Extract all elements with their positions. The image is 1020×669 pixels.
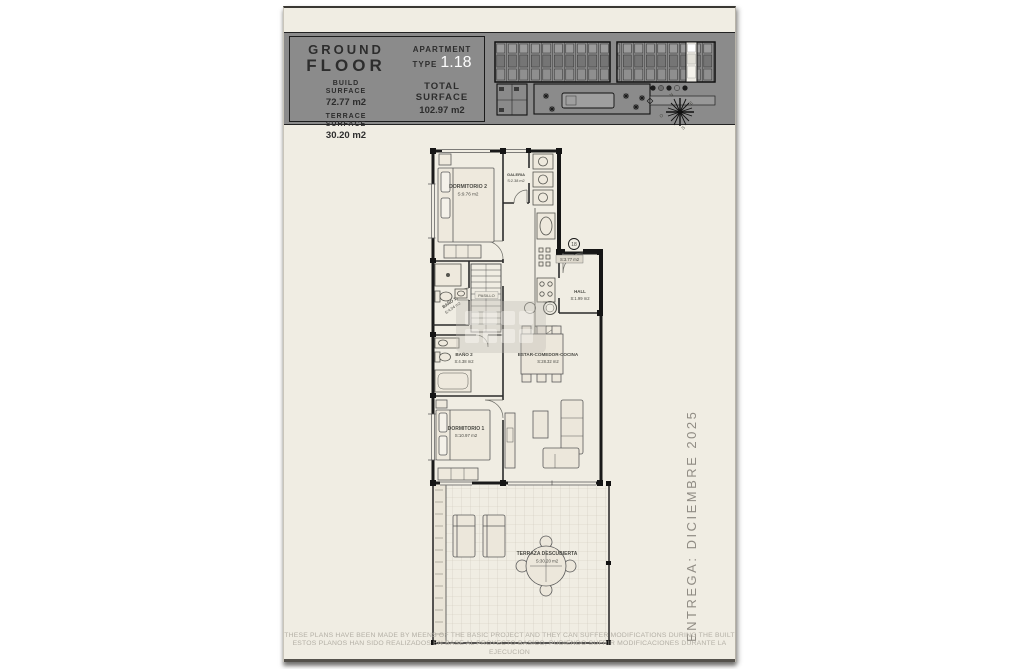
title-left-column: GROUND FLOOR BUILD SURFACE 72.77 m2 TERR… (290, 37, 402, 141)
galeria-area: S:2.38 m2 (507, 179, 524, 183)
hall-name: HALL (574, 289, 586, 294)
dormitorio1-name: DORMITORIO 1 (448, 426, 485, 432)
compass-o: O (658, 112, 664, 118)
amenity-area (497, 84, 715, 115)
bedroom2-furniture (438, 154, 494, 258)
hall-area: S:1.99 m2 (570, 296, 590, 301)
unit-number: 18 (571, 242, 577, 248)
terrace-planter (433, 483, 446, 643)
disclaimer: THESE PLANS HAVE BEEN MADE BY MEENS OF T… (284, 632, 735, 658)
build-surface-value: 72.77 m2 (290, 97, 402, 108)
apartment-type-value: 1.18 (440, 54, 471, 72)
pasillo-name: PASILLO (478, 293, 494, 298)
floor-title-line2: FLOOR (290, 57, 402, 75)
delivery-note: ENTREGA: DICIEMBRE 2025 (684, 390, 700, 642)
terraza-name: TERRAZA DESCUBIERTA (517, 551, 578, 557)
header-band: GROUND FLOOR BUILD SURFACE 72.77 m2 TERR… (284, 32, 735, 125)
bano2-area: S:4.38 m2 (454, 359, 474, 364)
watermark-logo (456, 301, 546, 353)
highlighted-unit (686, 42, 697, 82)
building-row (495, 42, 715, 82)
total-surface-value: 102.97 m2 (402, 105, 482, 116)
disclaimer-line1: THESE PLANS HAVE BEEN MADE BY MEENS OF T… (284, 632, 735, 641)
page-bottom-edge (284, 659, 735, 662)
title-block: GROUND FLOOR BUILD SURFACE 72.77 m2 TERR… (289, 36, 485, 122)
walkway (650, 96, 715, 105)
floor-plan: TERRAZA DESCUBIERTA S:30.20 m2 (426, 138, 621, 648)
site-key-plan: N E S O (490, 38, 724, 138)
apartment-type-label: TYPE (412, 60, 437, 69)
plan-sheet: GROUND FLOOR BUILD SURFACE 72.77 m2 TERR… (283, 6, 736, 662)
dormitorio2-area: S:9.76 m2 (458, 192, 479, 197)
compass-s: S (680, 125, 686, 131)
terrace-surface-label: TERRACE SURFACE (290, 113, 402, 129)
terrace-surface-value: 30.20 m2 (290, 130, 402, 141)
entrance-area: S:3.77 m2 (560, 257, 580, 262)
galeria-name: GALERIA (507, 172, 525, 177)
apartment-label: APARTMENT (402, 45, 482, 54)
floor-title-line1: GROUND (290, 42, 402, 57)
terrace: TERRAZA DESCUBIERTA S:30.20 m2 (431, 481, 611, 645)
estar-area: S:28.32 m2 (537, 359, 559, 364)
screenshot-canvas: GROUND FLOOR BUILD SURFACE 72.77 m2 TERR… (0, 0, 1020, 669)
disclaimer-line2: ESTOS PLANOS HAN SIDO REALIZADOS EN BASE… (284, 640, 735, 658)
dormitorio2-name: DORMITORIO 2 (449, 184, 487, 190)
build-surface-label: BUILD SURFACE (290, 80, 402, 96)
pool (562, 93, 614, 108)
dormitorio1-area: S:10.97 m2 (455, 433, 478, 438)
landscape-dots (650, 85, 687, 90)
total-surface-label: TOTAL SURFACE (402, 81, 482, 104)
terraza-area: S:30.20 m2 (536, 559, 559, 564)
title-right-column: APARTMENT TYPE 1.18 TOTAL SURFACE 102.97… (402, 37, 482, 141)
